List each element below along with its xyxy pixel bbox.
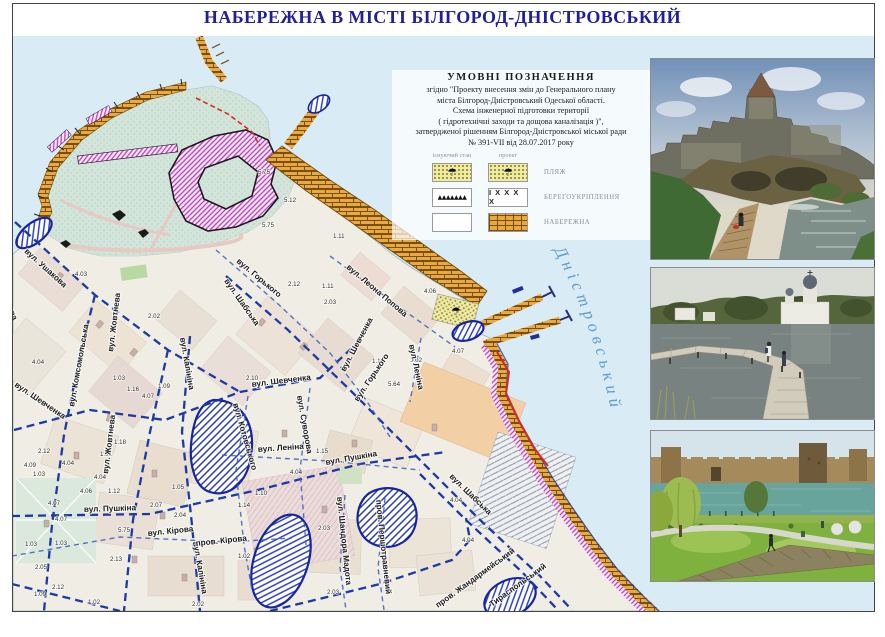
legend-label-embankment: НАБЕРЕЖНА	[544, 219, 650, 226]
umbrella-icon: ☂	[503, 167, 513, 178]
elevation-mark: 2.12	[38, 448, 51, 455]
elevation-mark: 4.04	[32, 359, 45, 366]
elevation-mark: 4.06	[424, 288, 437, 295]
legend-text-line: ( гідротехнічні заходи та дощова каналіз…	[392, 117, 650, 128]
legend-label-shore: БЕРЕГОУКРІПЛЕННЯ	[544, 194, 650, 201]
elevation-mark: 1.11	[333, 233, 345, 240]
legend-symbol-embankment-project	[488, 213, 528, 232]
elevation-mark: 5.12	[284, 197, 297, 204]
elevation-mark: 4.04	[94, 474, 107, 481]
legend-col-existing: існуючий стан	[432, 153, 472, 160]
elevation-mark: 2.13	[110, 556, 123, 563]
legend-symbol-shore-existing: ▲▲▲▲▲▲▲	[432, 188, 472, 207]
elevation-mark: 2.07	[150, 502, 163, 509]
elevation-mark: 4.03	[75, 271, 88, 278]
legend-symbol-beach-project: ☂	[488, 163, 528, 182]
elevation-mark: 1.09	[158, 383, 171, 390]
elevation-mark: 5.75	[262, 222, 275, 229]
legend-title: УМОВНІ ПОЗНАЧЕННЯ	[392, 72, 650, 83]
elevation-mark: 2.12	[288, 281, 301, 288]
legend-label-beach: ПЛЯЖ	[544, 169, 650, 176]
elevation-mark: 4.07	[452, 348, 465, 355]
legend-row-embankment: НАБЕРЕЖНА	[432, 213, 650, 232]
legend-column-headers: існуючий стан проект	[432, 153, 650, 160]
legend-symbol-shore-project: І Х Х Х Х	[488, 188, 528, 207]
elevation-mark: 1.03	[33, 471, 46, 478]
legend-symbol-beach-existing: ☂	[432, 163, 472, 182]
photo-pier	[650, 267, 875, 420]
legend-text-line: згідно "Проекту внесення змін до Генерал…	[392, 85, 650, 96]
elevation-mark: 1.14	[238, 502, 251, 509]
elevation-mark: 1.05	[172, 484, 185, 491]
elevation-mark: 4.04	[462, 537, 475, 544]
elevation-mark: 4.07	[142, 393, 155, 400]
elevation-mark: 1.11	[322, 283, 334, 290]
umbrella-icon: ☂	[447, 167, 457, 178]
elevation-mark: 2.05	[35, 564, 48, 571]
legend-row-beach: ☂ ☂ ПЛЯЖ	[432, 163, 650, 182]
elevation-mark: 4.07	[48, 500, 61, 507]
elevation-mark: 2.02	[148, 313, 161, 320]
page-title: НАБЕРЕЖНА В МІСТІ БІЛГОРОД-ДНІСТРОВСЬКИЙ	[0, 7, 885, 28]
map-legend: УМОВНІ ПОЗНАЧЕННЯ згідно "Проекту внесен…	[392, 70, 650, 240]
elevation-mark: 4.04	[450, 497, 463, 504]
legend-row-shore-protection: ▲▲▲▲▲▲▲ І Х Х Х Х БЕРЕГОУКРІПЛЕННЯ	[432, 188, 650, 207]
elevation-mark: 2.04	[174, 512, 187, 519]
elevation-mark: 1.16	[127, 386, 140, 393]
elevation-mark: 5.64	[388, 381, 401, 388]
legend-symbol-embankment-existing	[432, 213, 472, 232]
elevation-mark: 1.03	[55, 540, 68, 547]
elevation-mark: 2.12	[52, 584, 65, 591]
legend-text-line: № 391-VII від 28.07.2017 року	[392, 138, 650, 149]
photo-embankment	[650, 430, 875, 582]
elevation-mark: 1.03	[113, 375, 126, 382]
elevation-mark: 1.02	[88, 599, 101, 606]
legend-col-project: проект	[488, 153, 528, 160]
legend-text-line: міста Білгород-Дністровський Одеської об…	[392, 96, 650, 107]
legend-text-line: затвердженої рішенням Білгород-Дністровс…	[392, 127, 650, 138]
street-label: вул. Пушкіна	[84, 503, 137, 514]
plan-sheet: ☂	[0, 0, 885, 637]
elevation-mark: 1.12	[108, 488, 121, 495]
elevation-mark: 5.75	[258, 169, 271, 176]
elevation-mark: 1.15	[316, 448, 329, 455]
elevation-mark: 4.04	[62, 460, 75, 467]
elevation-mark: 1.18	[114, 439, 127, 446]
green-square	[338, 468, 362, 484]
elevation-mark: 2.03	[327, 589, 340, 596]
legend-text-line: Схема інженерної підготовки території	[392, 106, 650, 117]
elevation-mark: 4.06	[80, 488, 93, 495]
elevation-mark: 1.09	[34, 591, 47, 598]
elevation-mark: 2.03	[318, 525, 331, 532]
elevation-mark: 1.10	[255, 490, 268, 497]
legend-table: існуючий стан проект ☂ ☂ ПЛЯЖ ▲▲▲▲▲▲▲ І …	[432, 153, 650, 232]
elevation-mark: 1.02	[238, 553, 251, 560]
elevation-mark: 2.03	[324, 299, 337, 306]
elevation-mark: 2.02	[192, 601, 205, 608]
elevation-mark: 5.75	[118, 527, 131, 534]
photo-fortress	[650, 58, 875, 260]
elevation-mark: 4.04	[290, 469, 303, 476]
elevation-mark: 1.03	[25, 541, 38, 548]
elevation-mark: 4.07	[55, 516, 68, 523]
umbrella-icon: ☂	[451, 305, 461, 318]
elevation-mark: 4.09	[24, 462, 37, 469]
